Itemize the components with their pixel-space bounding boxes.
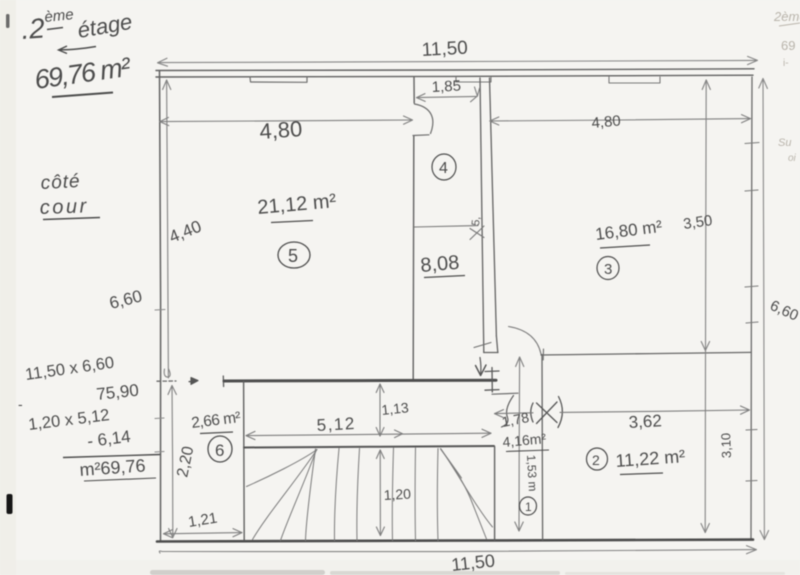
svg-text:cour: cour xyxy=(39,195,89,219)
svg-text:Su: Su xyxy=(778,137,791,149)
svg-text:5,: 5, xyxy=(470,216,483,226)
svg-text:3: 3 xyxy=(604,261,612,278)
svg-text:3,10: 3,10 xyxy=(718,433,734,459)
svg-text:côté: côté xyxy=(40,171,81,194)
svg-text:ème: ème xyxy=(44,6,75,26)
svg-text:4,80: 4,80 xyxy=(591,113,622,132)
svg-text:11,50: 11,50 xyxy=(421,38,468,61)
svg-text:-: - xyxy=(18,396,23,412)
svg-text:8,08: 8,08 xyxy=(420,252,461,277)
svg-text:1,20: 1,20 xyxy=(383,486,411,503)
svg-text:2ème: 2ème xyxy=(773,9,800,24)
svg-text:1,85: 1,85 xyxy=(431,77,461,96)
svg-text:2: 2 xyxy=(592,452,600,468)
svg-text:i-: i- xyxy=(783,58,789,69)
svg-text:69: 69 xyxy=(781,38,795,53)
svg-text:3,62: 3,62 xyxy=(628,411,662,432)
svg-text:4: 4 xyxy=(439,160,448,177)
svg-text:.2: .2 xyxy=(20,12,46,45)
svg-text:1,13: 1,13 xyxy=(381,399,410,418)
svg-text:oi: oi xyxy=(788,153,797,164)
svg-text:1: 1 xyxy=(525,500,532,514)
svg-text:4,80: 4,80 xyxy=(259,116,303,144)
svg-text:1,53 m: 1,53 m xyxy=(524,454,540,491)
svg-text:6: 6 xyxy=(215,441,224,460)
svg-text:5,12: 5,12 xyxy=(316,414,356,435)
svg-text:5: 5 xyxy=(288,246,298,266)
